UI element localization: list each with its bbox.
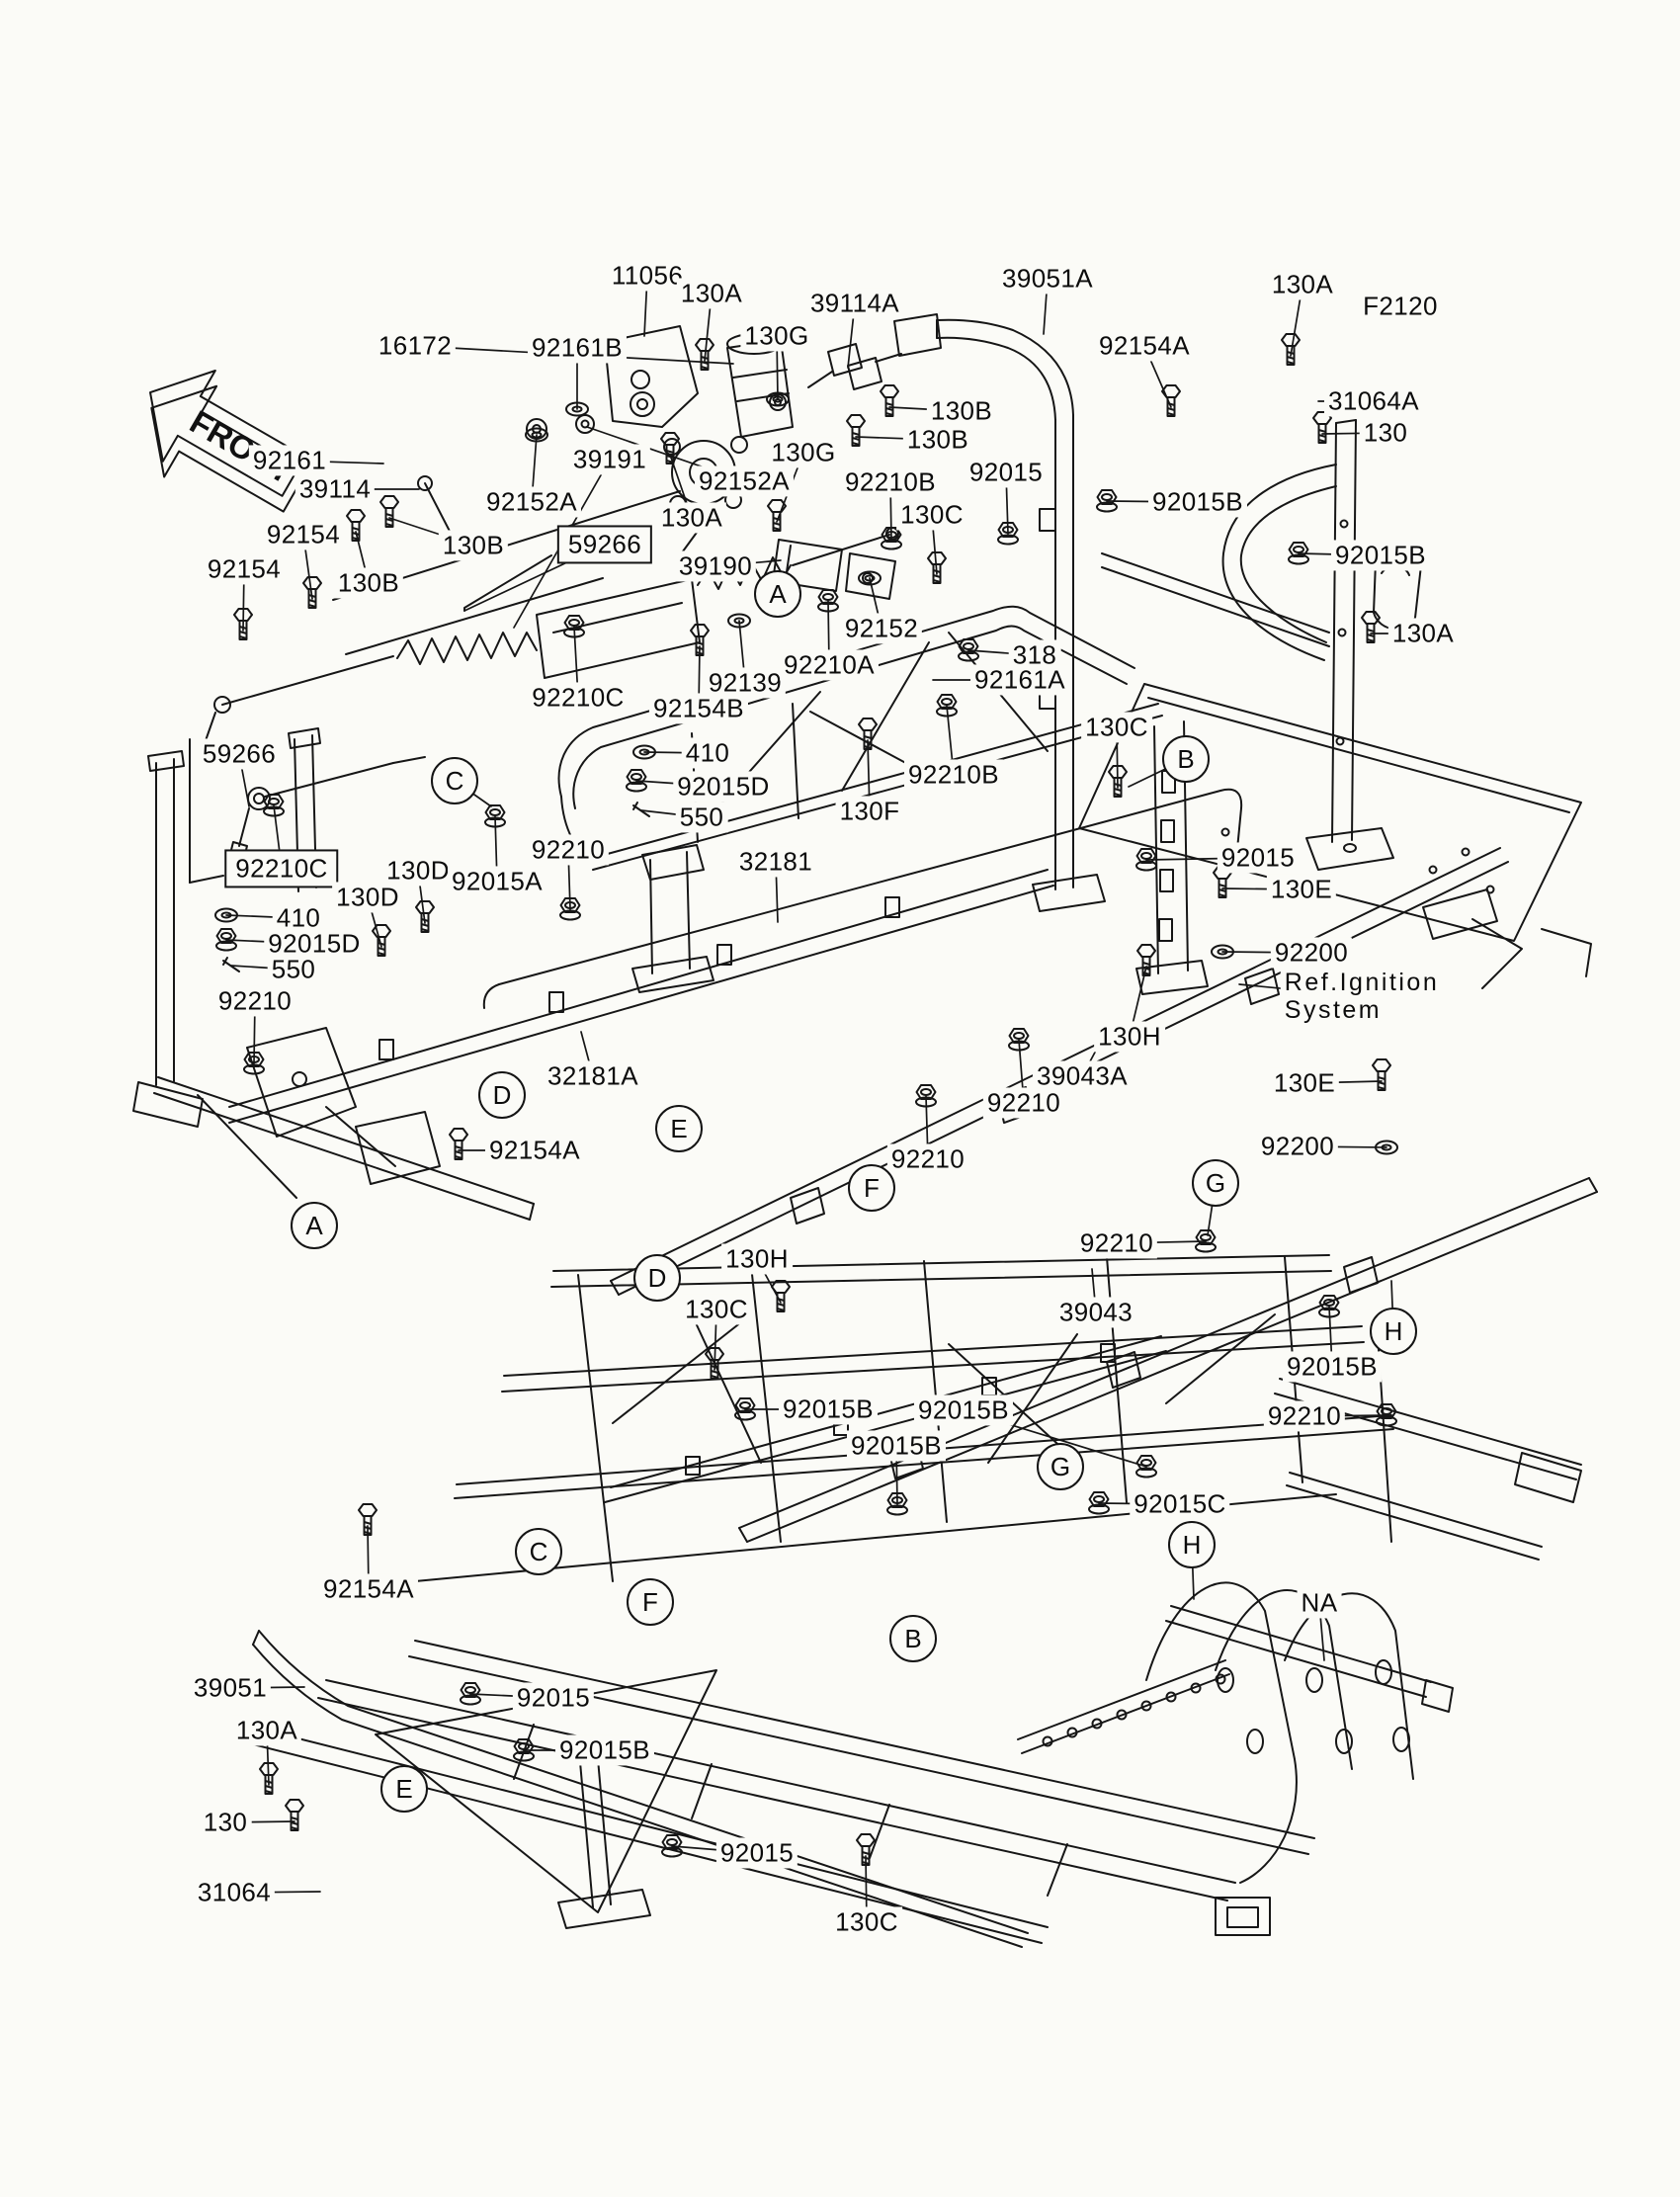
part-label-130A: 130A: [677, 278, 746, 308]
part-label-130H: 130H: [1094, 1021, 1165, 1052]
part-label-130C: 130C: [831, 1906, 902, 1937]
parts-diagram-canvas: FRONT: [0, 0, 1680, 2197]
part-label-92015: 92015: [966, 457, 1047, 487]
part-label-92154: 92154: [204, 553, 285, 584]
part-label-92210C: 92210C: [528, 682, 628, 713]
part-label-130: 130: [200, 1807, 252, 1837]
part-label-92015: 92015: [1218, 842, 1299, 873]
part-label-92210: 92210: [1076, 1227, 1157, 1258]
part-label-59266: 59266: [557, 525, 652, 563]
view-ref-circle-D: D: [633, 1254, 681, 1302]
part-label-31064A: 31064A: [1324, 385, 1423, 416]
view-ref-circle-G: G: [1037, 1443, 1084, 1490]
part-label-Ref-Ignition-System: Ref.Ignition System: [1281, 968, 1443, 1025]
part-label-92152: 92152: [841, 613, 922, 643]
view-ref-circle-G: G: [1192, 1159, 1239, 1207]
part-label-92210: 92210: [528, 834, 609, 865]
part-label-92015B: 92015B: [1331, 540, 1430, 570]
part-label-92210: 92210: [887, 1143, 968, 1174]
part-label-130F: 130F: [836, 796, 904, 826]
part-label-92200: 92200: [1271, 937, 1352, 968]
rear-carrier-art: [894, 314, 1591, 994]
part-label-39043: 39043: [1055, 1297, 1136, 1327]
part-label-11056: 11056: [608, 260, 687, 291]
part-label-92015B: 92015B: [847, 1430, 946, 1461]
part-label-59266: 59266: [199, 738, 280, 769]
part-label-92015C: 92015C: [1130, 1488, 1229, 1519]
part-label-130A: 130A: [1388, 618, 1458, 648]
part-label-130B: 130B: [903, 424, 972, 455]
part-label-92015B: 92015B: [914, 1394, 1013, 1425]
part-label-92154A: 92154A: [319, 1573, 418, 1604]
view-ref-circle-A: A: [291, 1202, 338, 1249]
view-ref-circle-H: H: [1370, 1308, 1417, 1355]
part-label-39190: 39190: [675, 550, 756, 581]
part-label-92154A: 92154A: [485, 1135, 584, 1165]
part-label-92210C: 92210C: [224, 849, 338, 887]
part-label-NA: NA: [1298, 1587, 1342, 1618]
part-label-92210: 92210: [214, 985, 295, 1016]
part-label-92161: 92161: [249, 445, 330, 475]
view-ref-circle-B: B: [1162, 735, 1210, 783]
front-direction-arrow: FRONT: [118, 348, 328, 538]
part-label-130G: 130G: [767, 437, 839, 467]
part-label-92015B: 92015B: [555, 1734, 654, 1765]
part-label-92161B: 92161B: [528, 332, 627, 363]
part-label-130B: 130B: [927, 395, 996, 426]
part-label-130B: 130B: [334, 567, 403, 598]
part-label-92161A: 92161A: [970, 664, 1069, 695]
part-label-130B: 130B: [439, 530, 508, 560]
part-label-32181A: 32181A: [544, 1060, 642, 1091]
part-label-92015D: 92015D: [673, 771, 773, 802]
part-label-92015A: 92015A: [448, 866, 546, 896]
part-label-92154B: 92154B: [649, 693, 748, 723]
view-ref-circle-C: C: [515, 1528, 562, 1575]
part-label-130D: 130D: [332, 882, 403, 912]
part-label-130: 130: [1360, 417, 1412, 448]
part-label-130E: 130E: [1270, 1067, 1339, 1098]
part-label-92154A: 92154A: [1095, 330, 1194, 361]
view-ref-circle-A: A: [754, 570, 801, 618]
view-ref-circle-E: E: [380, 1765, 428, 1813]
part-label-130C: 130C: [681, 1294, 752, 1324]
frame-line-art: FRONT: [0, 0, 1680, 2197]
part-label-39051: 39051: [190, 1672, 271, 1703]
part-label-550: 550: [676, 802, 728, 832]
part-label-32181: 32181: [735, 846, 816, 877]
part-label-92200: 92200: [1257, 1131, 1338, 1161]
part-label-39051A: 39051A: [998, 263, 1097, 294]
part-label-550: 550: [268, 954, 320, 984]
part-label-130A: 130A: [657, 502, 726, 533]
part-label-92015: 92015: [716, 1837, 798, 1868]
part-label-39114A: 39114A: [806, 288, 903, 318]
part-label-92015: 92015: [513, 1682, 594, 1713]
view-ref-circle-D: D: [478, 1071, 526, 1119]
part-label-F2120: F2120: [1359, 291, 1442, 321]
view-ref-circle-F: F: [848, 1164, 895, 1212]
front-bumper-art: [133, 728, 534, 1220]
part-label-39191: 39191: [569, 444, 650, 474]
part-label-92152A: 92152A: [695, 465, 794, 496]
view-ref-circle-F: F: [627, 1578, 674, 1626]
part-label-130E: 130E: [1267, 874, 1336, 904]
part-label-130A: 130A: [1268, 269, 1337, 299]
part-label-130A: 130A: [232, 1715, 301, 1745]
view-ref-circle-H: H: [1168, 1521, 1216, 1568]
part-label-92210: 92210: [983, 1087, 1064, 1118]
part-label-92015B: 92015B: [1283, 1351, 1382, 1382]
part-label-92210B: 92210B: [841, 466, 940, 497]
part-label-130C: 130C: [1081, 712, 1152, 742]
part-label-130H: 130H: [721, 1243, 793, 1274]
part-label-130G: 130G: [740, 320, 812, 351]
part-label-39114: 39114: [295, 473, 375, 504]
part-label-92154: 92154: [263, 519, 344, 549]
part-label-92210A: 92210A: [780, 649, 879, 680]
part-label-92210: 92210: [1264, 1400, 1345, 1431]
view-ref-circle-E: E: [655, 1105, 703, 1152]
part-label-16172: 16172: [375, 330, 456, 361]
part-label-92210B: 92210B: [904, 759, 1003, 790]
view-ref-circle-C: C: [431, 757, 478, 804]
part-label-31064: 31064: [194, 1877, 275, 1907]
part-label-92015B: 92015B: [779, 1394, 878, 1424]
part-label-410: 410: [682, 737, 734, 768]
view-ref-circle-B: B: [889, 1615, 937, 1662]
side-rails-art: [611, 848, 1597, 1542]
part-label-92015B: 92015B: [1148, 486, 1247, 517]
part-label-92152A: 92152A: [482, 486, 581, 517]
part-label-130C: 130C: [896, 499, 967, 530]
